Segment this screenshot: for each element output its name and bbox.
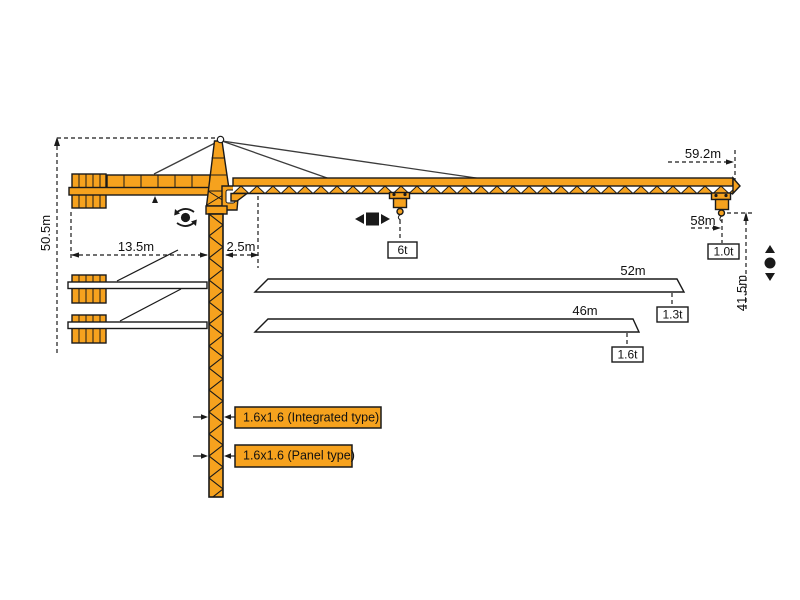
load-1-6t-label: 1.6t <box>617 348 638 362</box>
trolley-wheel-icon <box>403 193 406 196</box>
hook-hoist-icon <box>765 245 776 281</box>
counterjib-beam <box>69 188 212 196</box>
slewing-icon <box>174 209 197 226</box>
arrow-right-icon <box>200 252 208 257</box>
mast-lattice <box>209 214 223 497</box>
trolley-wheel-icon <box>724 194 727 197</box>
hook-block <box>716 200 729 210</box>
tower-mast <box>209 214 223 497</box>
jib-lattice <box>233 186 733 194</box>
jib-length-bar <box>255 279 684 292</box>
tower-head <box>206 136 239 214</box>
counter-jib <box>69 174 212 208</box>
load-6t-label: 6t <box>397 243 408 257</box>
hook-icon <box>719 210 725 216</box>
jib-option-46: 46m <box>255 303 639 332</box>
jib-46-label: 46m <box>572 303 597 318</box>
arrow-left-icon <box>224 453 231 458</box>
jib-length-bar <box>255 319 639 332</box>
slew-offset-label: 2.5m <box>227 239 256 254</box>
hook-tip <box>398 215 400 221</box>
trolley-mid <box>390 193 410 221</box>
jib-option-52: 52m <box>255 263 684 292</box>
leader-line <box>117 250 178 281</box>
tower-crane-diagram: 52m 46m 6t 1.0t 1.3t 1.6t 1.6x1.6 (Integ… <box>0 0 800 600</box>
integrated-type-label: 1.6x1.6 (Integrated type) <box>243 411 379 425</box>
marker-up-icon <box>152 196 158 203</box>
counterjib-radius-label: 13.5m <box>118 239 154 254</box>
tie-bar <box>68 322 207 329</box>
arrow-right-icon <box>726 159 734 164</box>
hook-block <box>394 199 407 208</box>
panel-type-label: 1.6x1.6 (Panel type) <box>243 449 355 463</box>
leader-line <box>120 289 181 321</box>
tie-ropes <box>154 141 483 179</box>
jib-root-gusset <box>231 194 247 202</box>
load-boxes: 6t 1.0t 1.3t 1.6t <box>388 242 739 362</box>
jib <box>231 178 740 201</box>
load-1-3t-label: 1.3t <box>662 308 683 322</box>
max-radius-label: 59.2m <box>685 146 721 161</box>
arrow-right-icon <box>201 414 208 419</box>
hook-icon <box>397 209 403 215</box>
counterweight-option-52 <box>68 250 207 303</box>
total-height-label: 50.5m <box>38 215 53 251</box>
trolley-wheel-icon <box>392 193 395 196</box>
jib-top-chord <box>233 178 733 186</box>
load-1-0t-label: 1.0t <box>713 245 734 259</box>
arrow-right-icon <box>201 453 208 458</box>
arrow-left-icon <box>71 252 79 257</box>
hook-travel-label: 41.5m <box>734 275 749 311</box>
jib-tip <box>733 178 740 194</box>
arrow-left-icon <box>224 414 231 419</box>
turntable <box>206 206 227 214</box>
apex-pin <box>217 136 223 142</box>
jib-52-label: 52m <box>620 263 645 278</box>
trolley-travel-icon <box>355 213 390 226</box>
tip-hook-radius-label: 58m <box>690 213 715 228</box>
trolley-wheel-icon <box>714 194 717 197</box>
tie-bar <box>68 282 207 289</box>
